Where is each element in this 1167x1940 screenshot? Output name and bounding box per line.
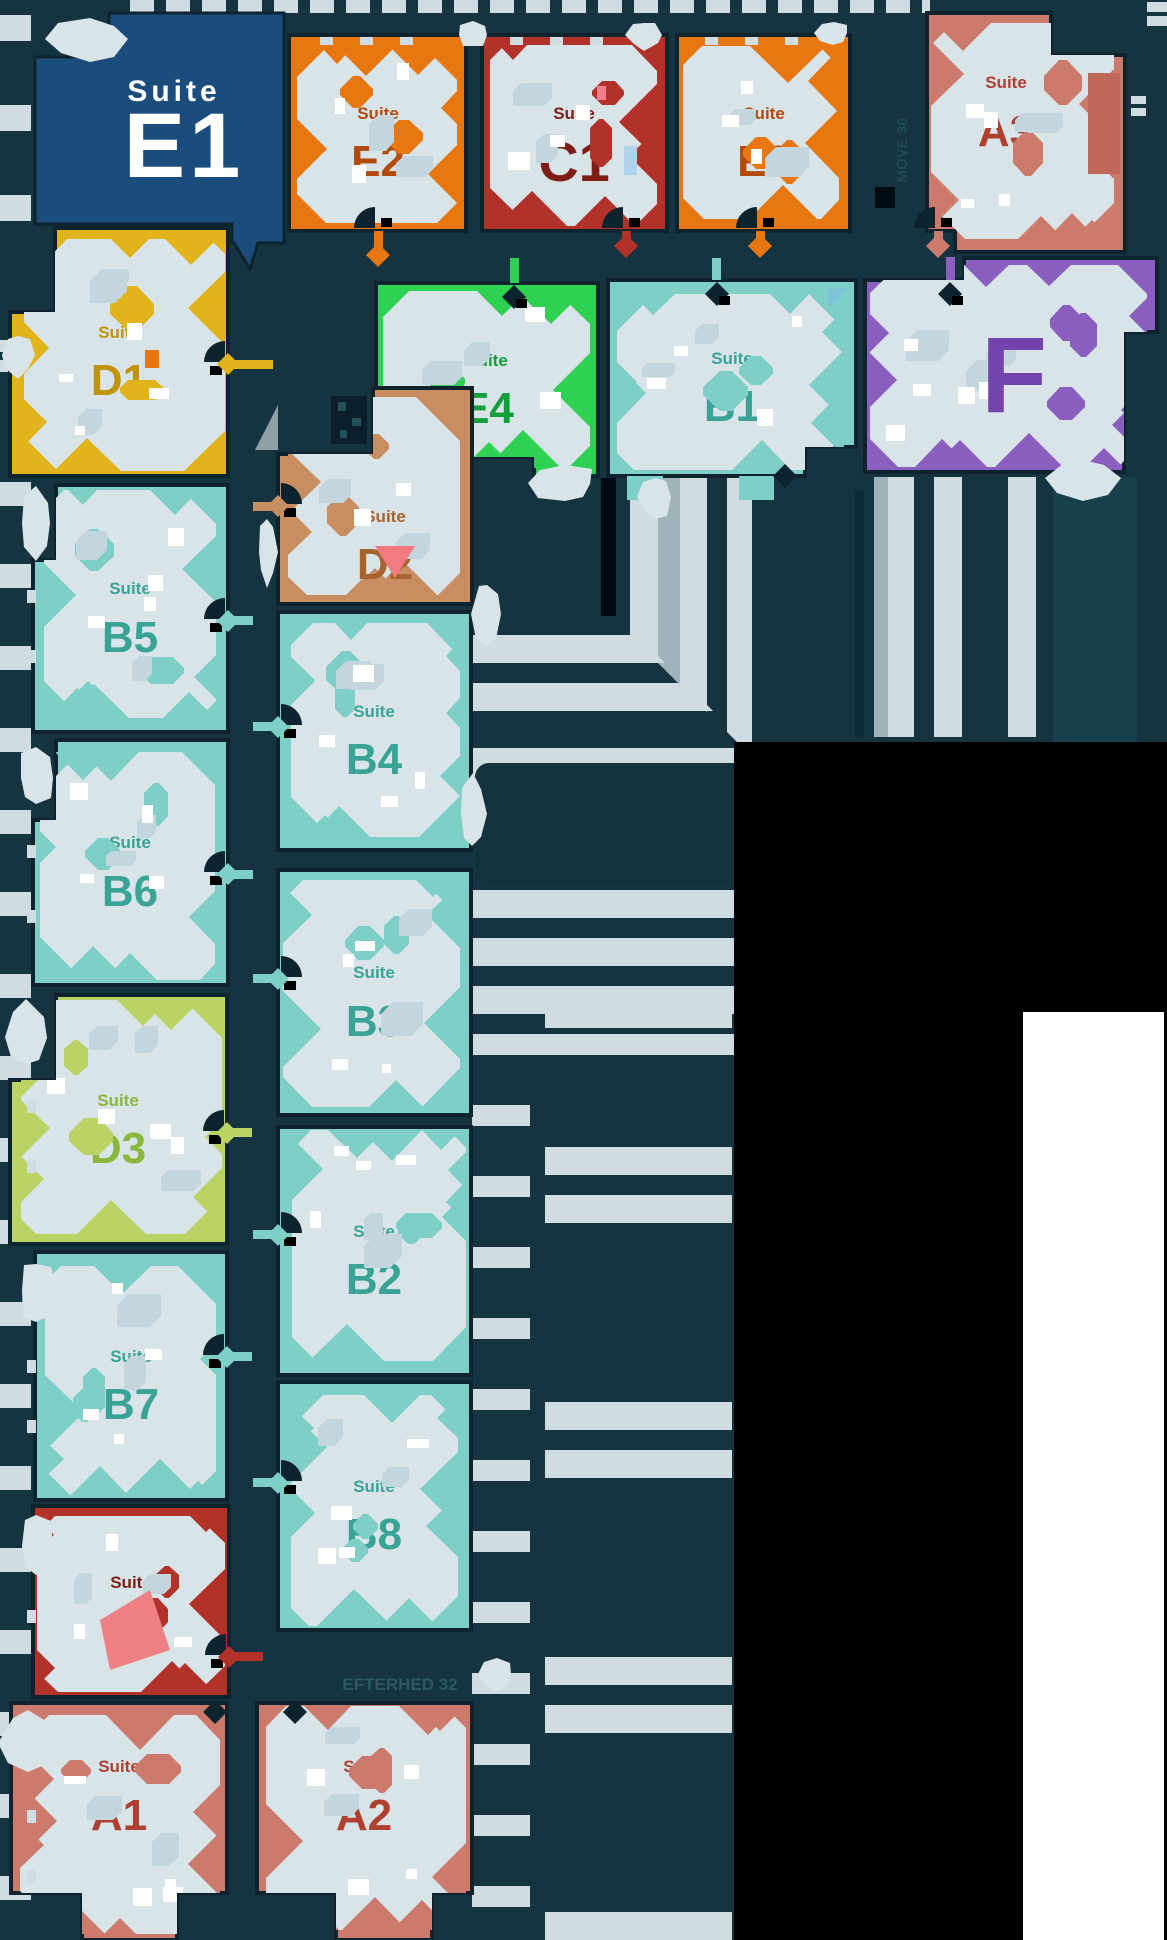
svg-text:Suite: Suite: [109, 579, 151, 598]
svg-text:B5: B5: [102, 613, 158, 662]
svg-text:Suite: Suite: [97, 1091, 139, 1110]
svg-text:Suite: Suite: [353, 963, 395, 982]
svg-text:Suite: Suite: [985, 73, 1027, 92]
svg-text:B6: B6: [102, 867, 158, 916]
svg-text:Suite: Suite: [353, 702, 395, 721]
svg-text:F: F: [981, 314, 1047, 435]
svg-text:EFTERHED 32: EFTERHED 32: [342, 1675, 457, 1694]
svg-text:E1: E1: [124, 95, 245, 197]
svg-text:MOVE 30: MOVE 30: [894, 117, 911, 182]
svg-text:B4: B4: [346, 735, 403, 784]
svg-text:Suite: Suite: [98, 1757, 140, 1776]
